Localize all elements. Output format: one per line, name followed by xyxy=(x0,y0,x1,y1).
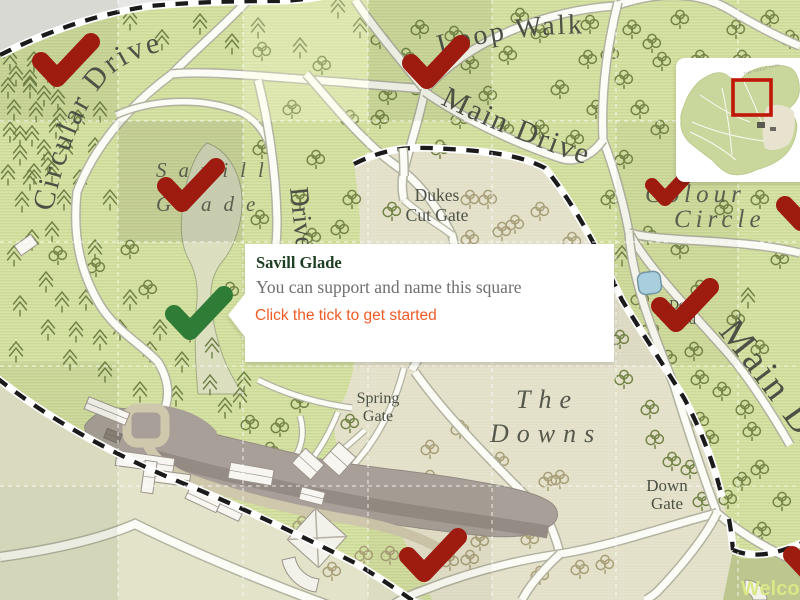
svg-text:Cut Gate: Cut Gate xyxy=(406,205,469,225)
svg-text:Welco: Welco xyxy=(741,578,800,600)
svg-text:Dukes: Dukes xyxy=(415,185,460,205)
svg-text:You can support and name this: You can support and name this square xyxy=(256,277,522,297)
svg-text:Gate: Gate xyxy=(651,494,683,513)
svg-text:Circle: Circle xyxy=(674,206,766,233)
svg-text:Down: Down xyxy=(646,476,688,495)
svg-text:Gate: Gate xyxy=(363,408,393,425)
svg-text:Click the tick to get started: Click the tick to get started xyxy=(255,307,437,324)
svg-text:Drive: Drive xyxy=(284,185,320,249)
svg-text:Downs: Downs xyxy=(489,419,602,448)
svg-text:The: The xyxy=(516,385,579,414)
svg-text:Savill Glade: Savill Glade xyxy=(256,253,342,272)
svg-text:Spring: Spring xyxy=(357,390,400,407)
